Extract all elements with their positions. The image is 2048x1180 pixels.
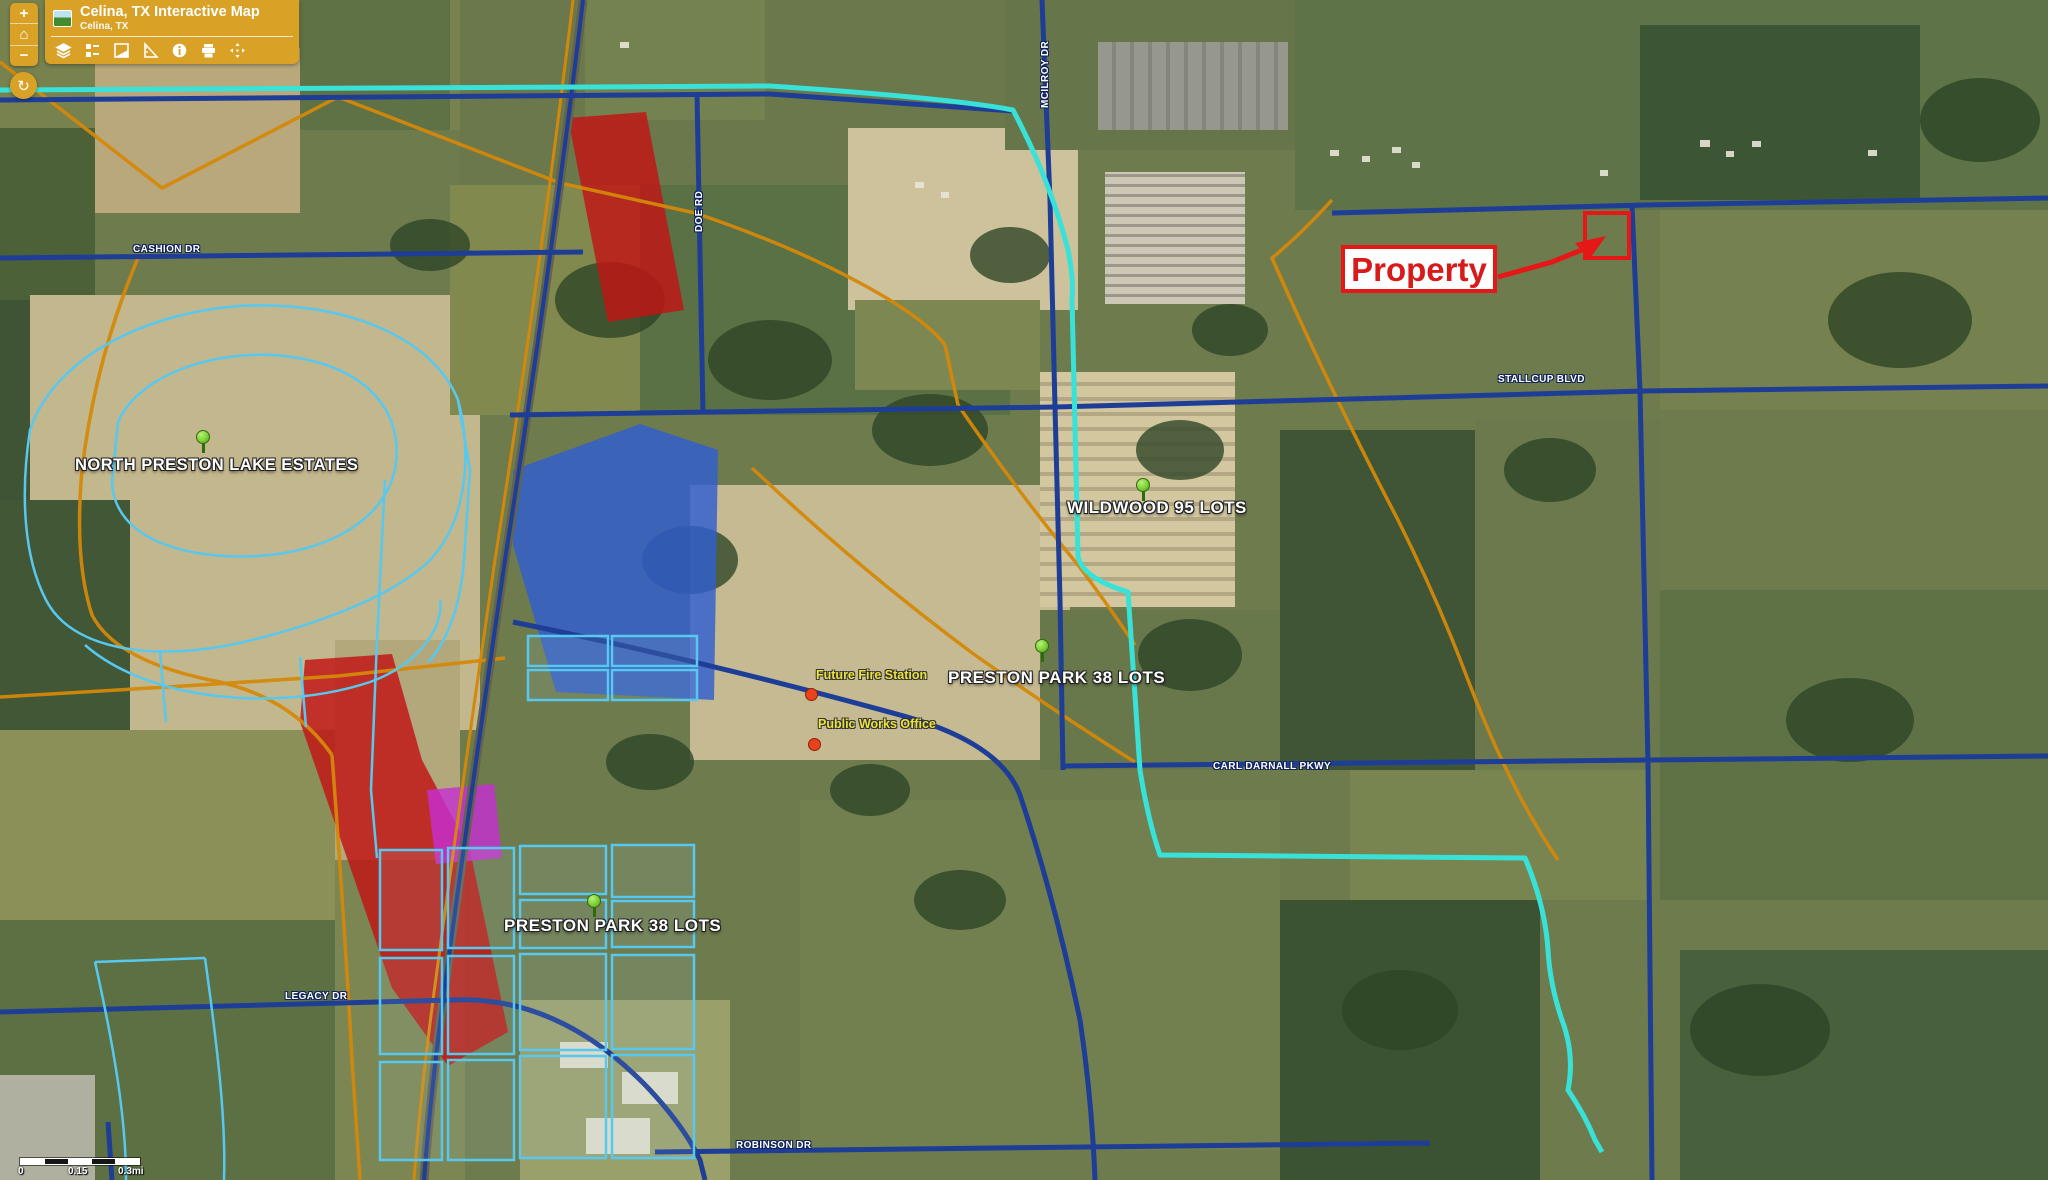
pin-head xyxy=(196,430,210,444)
pan-icon[interactable] xyxy=(229,42,246,59)
map-canvas[interactable]: NORTH PRESTON LAKE ESTATES WILDWOOD 95 L… xyxy=(0,0,2048,1180)
poi-label-future-fire-station: Future Fire Station xyxy=(816,668,927,682)
label-wildwood-95-lots: WILDWOOD 95 LOTS xyxy=(1067,498,1247,518)
home-button[interactable]: ⌂ xyxy=(10,23,38,44)
road-label-stallcup-blvd: STALLCUP BLVD xyxy=(1498,374,1585,385)
info-icon[interactable] xyxy=(171,42,188,59)
label-preston-park-38-lots-south: PRESTON PARK 38 LOTS xyxy=(504,916,721,936)
road-label-doe-rd: DOE RD xyxy=(694,191,705,232)
property-callout-box: Property xyxy=(1341,245,1497,293)
poi-label-public-works-office: Public Works Office xyxy=(818,717,936,731)
measure-icon[interactable] xyxy=(142,42,159,59)
legend-icon[interactable] xyxy=(84,42,101,59)
zoom-out-button[interactable]: − xyxy=(10,45,38,66)
toolbar-icon-row xyxy=(45,37,299,64)
poi-dot-public-works xyxy=(808,738,821,751)
map-subtitle: Celina, TX xyxy=(80,21,260,33)
road-label-cashion-dr: CASHION DR xyxy=(133,244,200,255)
pin-head xyxy=(1035,639,1049,653)
layers-icon[interactable] xyxy=(55,42,72,59)
road-label-robinson-dr: ROBINSON DR xyxy=(736,1140,812,1151)
road-label-carl-darnall-pkwy: CARL DARNALL PKWY xyxy=(1213,761,1331,772)
road-label-legacy-dr: LEGACY DR xyxy=(285,991,347,1002)
lot-grid-outlines xyxy=(380,636,697,1160)
label-north-preston-lake-estates: NORTH PRESTON LAKE ESTATES xyxy=(75,456,358,475)
refresh-button[interactable]: ↻ xyxy=(10,72,37,99)
print-icon[interactable] xyxy=(200,42,217,59)
header-panel: Celina, TX Interactive Map Celina, TX xyxy=(45,0,299,64)
pin-head xyxy=(1136,478,1150,492)
zoom-widget: + ⌂ − xyxy=(10,3,38,66)
orange-roads xyxy=(0,62,1558,1180)
pin-head xyxy=(587,894,601,908)
property-callout-text: Property xyxy=(1351,253,1487,286)
basemap-thumbnail[interactable] xyxy=(53,10,72,27)
building-specks xyxy=(560,42,1877,1154)
property-callout-graphics xyxy=(1498,213,1629,277)
zoom-in-button[interactable]: + xyxy=(10,3,38,23)
scale-bar-segments xyxy=(20,1158,140,1165)
poi-dot-fire-station xyxy=(805,688,818,701)
map-overlay-graphics xyxy=(0,0,2048,1180)
label-preston-park-38-lots-center: PRESTON PARK 38 LOTS xyxy=(948,668,1165,688)
road-label-mcilroy-dr: MCILROY DR xyxy=(1040,41,1051,108)
scale-label-mid: 0.15 xyxy=(68,1166,87,1177)
basemap-icon[interactable] xyxy=(113,42,130,59)
scale-bar: 0 0.15 0.3mi xyxy=(20,1158,150,1165)
scale-label-zero: 0 xyxy=(18,1166,24,1177)
map-title: Celina, TX Interactive Map xyxy=(80,4,260,21)
scale-label-end: 0.3mi xyxy=(118,1166,144,1177)
